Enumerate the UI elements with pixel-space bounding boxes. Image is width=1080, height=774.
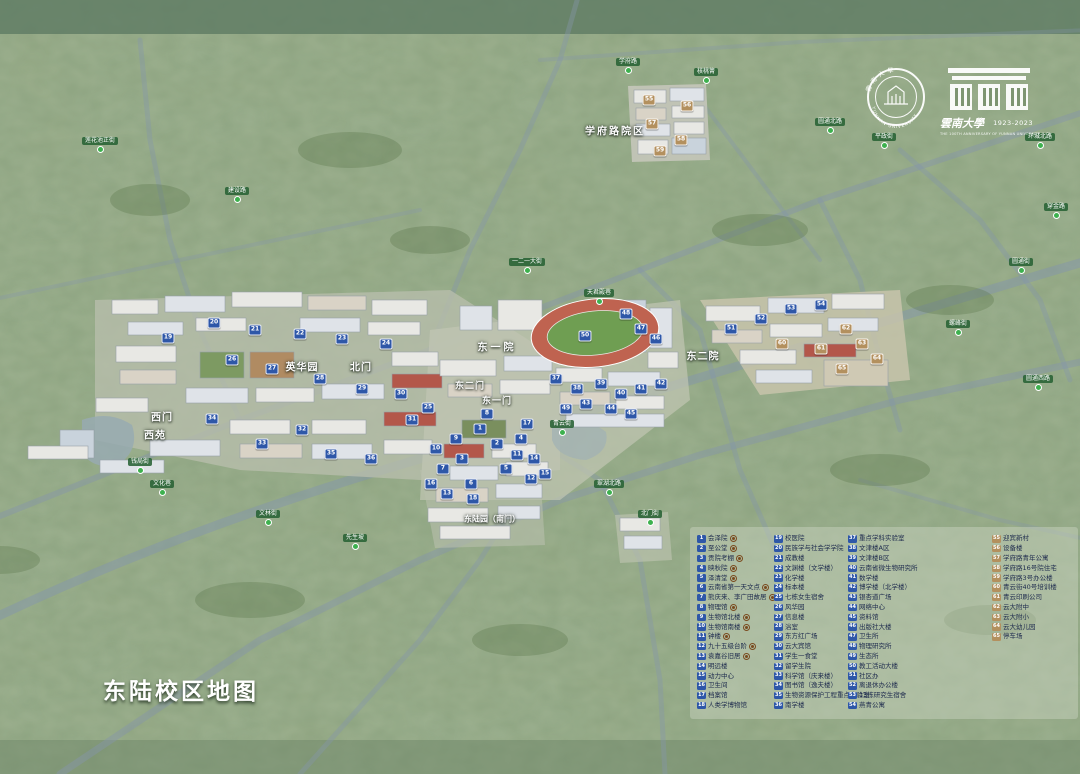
legend-number-badge: 44 <box>848 604 857 612</box>
road-label: 一二一大街 <box>509 258 545 274</box>
legend-item: 13 袁嘉谷旧居 <box>697 652 776 662</box>
building-number-badge: 8 <box>481 409 494 420</box>
legend-label: 社区办 <box>859 672 879 681</box>
map-pin-icon <box>1052 212 1059 219</box>
legend-number-badge: 45 <box>848 614 857 622</box>
building-number-badge: 32 <box>296 425 309 436</box>
legend-label: 明远楼 <box>708 662 728 671</box>
map-pin-icon <box>646 519 653 526</box>
legend-label: 标本楼 <box>785 583 805 592</box>
legend-label: 南学楼 <box>785 701 805 710</box>
legend-label: 文津楼B区 <box>859 554 889 563</box>
legend-label: 云南省微生物研究所 <box>859 564 918 573</box>
legend-label: 资料馆 <box>859 613 879 622</box>
legend-label: 燕青公寓 <box>859 701 885 710</box>
legend-label: 停车场 <box>1003 632 1023 641</box>
legend-label: 科学馆（庆来楼） <box>785 672 837 681</box>
legend-label: 13栋研究生宿舍 <box>859 691 906 700</box>
area-label: 西门 <box>151 409 173 424</box>
legend-item: 48 物理研究所 <box>848 642 918 652</box>
legend-number-badge: 8 <box>697 604 706 612</box>
legend-item: 52 离退休办公楼 <box>848 681 918 691</box>
campus-map: 雲南大學 YUNNAN UNIVERSITY 学府路 <box>0 0 1080 774</box>
road-label: 建设路 <box>225 187 249 203</box>
map-pin-icon <box>351 543 358 550</box>
legend-label: 卫生间 <box>708 681 728 690</box>
map-pin-icon <box>158 489 165 496</box>
legend-label: 学生一食堂 <box>785 652 818 661</box>
building-number-badge: 19 <box>162 333 175 344</box>
legend-number-badge: 21 <box>774 555 783 563</box>
legend-number-badge: 19 <box>774 535 783 543</box>
map-pin-icon <box>96 146 103 153</box>
legend-number-badge: 13 <box>697 653 706 661</box>
building-number-badge: 60 <box>776 339 789 350</box>
building-number-badge: 40 <box>615 389 628 400</box>
page-title: 东陆校区地图 <box>103 672 259 706</box>
area-label: 学府路院区 <box>585 123 645 138</box>
building-number-badge: 61 <box>815 344 828 355</box>
road-label: 螺峰街 <box>946 320 970 336</box>
legend-item: 46 出版社大楼 <box>848 622 918 632</box>
legend-label: 云大附小 <box>1003 613 1029 622</box>
centennial-years: 1923-2023 <box>993 119 1033 127</box>
building-number-badge: 9 <box>450 434 463 445</box>
legend-item: 44 网络中心 <box>848 603 918 613</box>
legend-panel: 1 会泽院 2 至公堂 3 贡院考棚 4 映 <box>690 527 1078 719</box>
legend-column-1: 1 会泽院 2 至公堂 3 贡院考棚 4 映 <box>697 534 776 710</box>
legend-label: 信息楼 <box>785 613 805 622</box>
building-number-badge: 17 <box>521 419 534 430</box>
heritage-marker-icon <box>723 633 730 640</box>
legend-number-badge: 4 <box>697 565 706 573</box>
legend-number-badge: 57 <box>992 555 1001 563</box>
legend-number-badge: 38 <box>848 545 857 553</box>
centennial-subtitle: THE 100TH ANNIVERSARY OF YUNNAN UNIVERSI… <box>940 132 1055 136</box>
road-label: 圆通北路 <box>815 118 845 134</box>
building-number-badge: 45 <box>625 409 638 420</box>
building-number-badge: 52 <box>755 314 768 325</box>
legend-item: 64 云大幼儿园 <box>992 622 1057 632</box>
legend-item: 16 卫生间 <box>697 681 776 691</box>
legend-number-badge: 17 <box>697 692 706 700</box>
map-pin-icon <box>264 519 271 526</box>
legend-label: 云大附中 <box>1003 603 1029 612</box>
legend-number-badge: 54 <box>848 702 857 710</box>
legend-number-badge: 11 <box>697 633 706 641</box>
legend-label: 人类学博物馆 <box>708 701 747 710</box>
legend-label: 设备楼 <box>1003 544 1023 553</box>
legend-label: 银杏道广场 <box>859 593 892 602</box>
legend-number-badge: 36 <box>774 702 783 710</box>
legend-number-badge: 47 <box>848 633 857 641</box>
map-pin-icon <box>1017 267 1024 274</box>
road-label: 先生坡 <box>343 534 367 550</box>
legend-label: 会泽院 <box>708 534 728 543</box>
legend-item: 5 泽清堂 <box>697 573 776 583</box>
legend-number-badge: 9 <box>697 614 706 622</box>
building-number-badge: 47 <box>635 324 648 335</box>
building-number-badge: 18 <box>467 494 480 505</box>
legend-label: 云大幼儿园 <box>1003 623 1036 632</box>
legend-label: 物理馆 <box>708 603 728 612</box>
map-pin-icon <box>624 67 631 74</box>
building-number-badge: 7 <box>437 464 450 475</box>
building-number-badge: 38 <box>571 384 584 395</box>
road-label: 穿金路 <box>1044 203 1068 219</box>
building-number-badge: 33 <box>256 439 269 450</box>
building-number-badge: 29 <box>356 384 369 395</box>
legend-label: 博学楼（北学楼） <box>859 583 911 592</box>
building-number-badge: 2 <box>491 439 504 450</box>
map-pin-icon <box>1034 384 1041 391</box>
legend-label: 生物馆南楼 <box>708 623 741 632</box>
road-label: 天君殿巷 <box>584 289 614 305</box>
legend-number-badge: 56 <box>992 545 1001 553</box>
building-number-badge: 48 <box>620 309 633 320</box>
legend-number-badge: 3 <box>697 555 706 563</box>
legend-number-badge: 51 <box>848 672 857 680</box>
heritage-marker-icon <box>730 545 737 552</box>
building-number-badge: 50 <box>579 331 592 342</box>
building-number-badge: 51 <box>725 324 738 335</box>
legend-number-badge: 23 <box>774 574 783 582</box>
legend-item: 51 社区办 <box>848 671 918 681</box>
legend-number-badge: 37 <box>848 535 857 543</box>
legend-number-badge: 16 <box>697 682 706 690</box>
legend-label: 网络中心 <box>859 603 885 612</box>
legend-item: 49 生态所 <box>848 652 918 662</box>
road-label: 圆通街 <box>1009 258 1033 274</box>
building-number-badge: 4 <box>515 434 528 445</box>
legend-number-badge: 34 <box>774 682 783 690</box>
legend-number-badge: 14 <box>697 663 706 671</box>
legend-item: 59 学府路3号办公楼 <box>992 573 1057 583</box>
legend-label: 浴室 <box>785 623 798 632</box>
building-number-badge: 14 <box>528 454 541 465</box>
legend-item: 45 资料馆 <box>848 612 918 622</box>
building-number-badge: 10 <box>430 444 443 455</box>
building-number-badge: 49 <box>560 404 573 415</box>
road-label: 学府路 <box>616 58 640 74</box>
legend-item: 15 动力中心 <box>697 671 776 681</box>
building-number-badge: 42 <box>655 379 668 390</box>
heritage-marker-icon <box>730 565 737 572</box>
legend-number-badge: 60 <box>992 584 1001 592</box>
road-label: 文林街 <box>256 510 280 526</box>
building-number-badge: 43 <box>580 399 593 410</box>
building-number-badge: 12 <box>525 474 538 485</box>
building-number-badge: 24 <box>380 339 393 350</box>
area-label: 西苑 <box>144 427 166 442</box>
building-number-badge: 59 <box>654 146 667 157</box>
building-number-badge: 44 <box>605 404 618 415</box>
legend-item: 14 明远楼 <box>697 661 776 671</box>
legend-item: 53 13栋研究生宿舍 <box>848 691 918 701</box>
legend-number-badge: 1 <box>697 535 706 543</box>
road-label: 文化巷 <box>150 480 174 496</box>
map-pin-icon <box>523 267 530 274</box>
legend-item: 1 会泽院 <box>697 534 776 544</box>
building-number-badge: 30 <box>395 389 408 400</box>
building-number-badge: 28 <box>314 374 327 385</box>
legend-item: 8 物理馆 <box>697 603 776 613</box>
legend-number-badge: 22 <box>774 565 783 573</box>
building-number-badge: 58 <box>675 135 688 146</box>
legend-number-badge: 62 <box>992 604 1001 612</box>
legend-item: 17 档案馆 <box>697 691 776 701</box>
map-pin-icon <box>595 298 602 305</box>
legend-label: 出版社大楼 <box>859 623 892 632</box>
area-label: 东陆园（南门） <box>464 514 520 525</box>
legend-label: 熊庆来、李广田故居 <box>708 593 767 602</box>
legend-number-badge: 6 <box>697 584 706 592</box>
building-number-badge: 25 <box>422 403 435 414</box>
legend-label: 文津楼A区 <box>859 544 889 553</box>
legend-label: 离退休办公楼 <box>859 681 898 690</box>
area-label: 北门 <box>350 359 372 374</box>
building-number-badge: 3 <box>456 454 469 465</box>
legend-number-badge: 32 <box>774 663 783 671</box>
legend-label: 学府路16号院住宅 <box>1003 564 1057 573</box>
legend-label: 生态所 <box>859 652 879 661</box>
heritage-marker-icon <box>736 555 743 562</box>
legend-number-badge: 25 <box>774 594 783 602</box>
legend-number-badge: 31 <box>774 653 783 661</box>
map-pin-icon <box>702 77 709 84</box>
legend-label: 袁嘉谷旧居 <box>708 652 741 661</box>
legend-label: 青云街40号培训楼 <box>1003 583 1057 592</box>
legend-number-badge: 33 <box>774 672 783 680</box>
legend-label: 图书馆（逸夫楼） <box>785 681 837 690</box>
legend-number-badge: 5 <box>697 574 706 582</box>
building-number-badge: 35 <box>325 449 338 460</box>
legend-item: 58 学府路16号院住宅 <box>992 563 1057 573</box>
legend-number-badge: 28 <box>774 623 783 631</box>
building-number-badge: 23 <box>336 334 349 345</box>
legend-column-4: 55 迎宾新村 56 设备楼 57 学府路青年公寓 58 <box>992 534 1057 642</box>
legend-number-badge: 43 <box>848 594 857 602</box>
legend-label: 校医院 <box>785 534 805 543</box>
legend-number-badge: 39 <box>848 555 857 563</box>
legend-label: 成教楼 <box>785 554 805 563</box>
legend-label: 档案馆 <box>708 691 728 700</box>
legend-number-badge: 46 <box>848 623 857 631</box>
legend-number-badge: 59 <box>992 574 1001 582</box>
legend-item: 10 生物馆南楼 <box>697 622 776 632</box>
building-number-badge: 41 <box>635 384 648 395</box>
legend-item: 18 人类学博物馆 <box>697 701 776 711</box>
map-pin-icon <box>136 467 143 474</box>
building-number-badge: 57 <box>646 119 659 130</box>
map-pin-icon <box>558 429 565 436</box>
legend-item: 42 博学楼（北学楼） <box>848 583 918 593</box>
legend-label: 民族学与社会学学院 <box>785 544 844 553</box>
building-number-badge: 64 <box>871 354 884 365</box>
building-number-badge: 5 <box>500 464 513 475</box>
legend-item: 40 云南省微生物研究所 <box>848 563 918 573</box>
legend-label: 动力中心 <box>708 672 734 681</box>
legend-number-badge: 50 <box>848 663 857 671</box>
legend-item: 50 教工活动大楼 <box>848 661 918 671</box>
heritage-marker-icon <box>762 584 769 591</box>
legend-label: 贡院考棚 <box>708 554 734 563</box>
legend-label: 东方红广场 <box>785 632 818 641</box>
legend-number-badge: 24 <box>774 584 783 592</box>
building-number-badge: 20 <box>208 318 221 329</box>
legend-number-badge: 35 <box>774 692 783 700</box>
legend-item: 41 数学楼 <box>848 573 918 583</box>
building-number-badge: 11 <box>511 450 524 461</box>
legend-label: 映秋院 <box>708 564 728 573</box>
building-number-badge: 34 <box>206 414 219 425</box>
legend-item: 4 映秋院 <box>697 563 776 573</box>
legend-column-3: 37 重点学科实验室 38 文津楼A区 39 文津楼B区 40 <box>848 534 918 710</box>
legend-item: 37 重点学科实验室 <box>848 534 918 544</box>
legend-label: 教工活动大楼 <box>859 662 898 671</box>
legend-number-badge: 52 <box>848 682 857 690</box>
building-number-badge: 31 <box>406 415 419 426</box>
heritage-marker-icon <box>749 643 756 650</box>
building-number-badge: 62 <box>840 324 853 335</box>
legend-label: 云南省第一天文点 <box>708 583 760 592</box>
heritage-marker-icon <box>730 604 737 611</box>
legend-number-badge: 63 <box>992 614 1001 622</box>
legend-item: 6 云南省第一天文点 <box>697 583 776 593</box>
legend-label: 生物馆北楼 <box>708 613 741 622</box>
legend-item: 54 燕青公寓 <box>848 701 918 711</box>
building-number-badge: 13 <box>441 489 454 500</box>
legend-number-badge: 40 <box>848 565 857 573</box>
legend-label: 学府路青年公寓 <box>1003 554 1049 563</box>
legend-label: 迎宾新村 <box>1003 534 1029 543</box>
road-label: 青云街 <box>550 420 574 436</box>
centennial-name: 雲南大學 <box>940 115 984 131</box>
legend-label: 物理研究所 <box>859 642 892 651</box>
building-number-badge: 15 <box>539 469 552 480</box>
legend-number-badge: 55 <box>992 535 1001 543</box>
legend-number-badge: 65 <box>992 633 1001 641</box>
building-number-badge: 26 <box>226 355 239 366</box>
legend-number-badge: 26 <box>774 604 783 612</box>
legend-label: 留学生院 <box>785 662 811 671</box>
building-number-badge: 54 <box>815 300 828 311</box>
legend-number-badge: 2 <box>697 545 706 553</box>
legend-label: 风华园 <box>785 603 805 612</box>
legend-label: 至公堂 <box>708 544 728 553</box>
legend-number-badge: 58 <box>992 565 1001 573</box>
legend-item: 12 九十五级台阶 <box>697 642 776 652</box>
building-number-badge: 55 <box>643 95 656 106</box>
legend-item: 56 设备楼 <box>992 544 1057 554</box>
legend-number-badge: 49 <box>848 653 857 661</box>
building-number-badge: 16 <box>425 479 438 490</box>
map-pin-icon <box>233 196 240 203</box>
building-number-badge: 39 <box>595 379 608 390</box>
legend-item: 61 青云印刷公司 <box>992 593 1057 603</box>
legend-item: 3 贡院考棚 <box>697 554 776 564</box>
legend-number-badge: 27 <box>774 614 783 622</box>
legend-number-badge: 41 <box>848 574 857 582</box>
building-number-badge: 22 <box>294 329 307 340</box>
legend-label: 数学楼 <box>859 574 879 583</box>
area-label: 东二门 <box>455 379 485 392</box>
building-number-badge: 56 <box>681 101 694 112</box>
legend-item: 7 熊庆来、李广田故居 <box>697 593 776 603</box>
legend-number-badge: 64 <box>992 623 1001 631</box>
heritage-marker-icon <box>743 614 750 621</box>
legend-number-badge: 48 <box>848 643 857 651</box>
legend-label: 文渊楼（文学楼） <box>785 564 837 573</box>
legend-label: 化学楼 <box>785 574 805 583</box>
legend-item: 2 至公堂 <box>697 544 776 554</box>
legend-label: 泽清堂 <box>708 574 728 583</box>
road-label: 莲花池正街 <box>82 137 118 153</box>
legend-item: 63 云大附小 <box>992 612 1057 622</box>
area-label: 英华园 <box>286 359 319 374</box>
legend-number-badge: 15 <box>697 672 706 680</box>
legend-number-badge: 10 <box>697 623 706 631</box>
area-label: 东一院 <box>478 339 517 354</box>
area-label: 东二院 <box>687 348 720 363</box>
legend-number-badge: 29 <box>774 633 783 641</box>
legend-number-badge: 30 <box>774 643 783 651</box>
legend-number-badge: 12 <box>697 643 706 651</box>
legend-number-badge: 61 <box>992 594 1001 602</box>
legend-label: 七栋女生宿舍 <box>785 593 824 602</box>
heritage-marker-icon <box>743 653 750 660</box>
building-number-badge: 65 <box>836 364 849 375</box>
legend-item: 43 银杏道广场 <box>848 593 918 603</box>
heritage-marker-icon <box>730 535 737 542</box>
legend-number-badge: 7 <box>697 594 706 602</box>
building-number-badge: 37 <box>550 374 563 385</box>
legend-label: 云大宾馆 <box>785 642 811 651</box>
legend-item: 39 文津楼B区 <box>848 554 918 564</box>
legend-label: 学府路3号办公楼 <box>1003 574 1053 583</box>
legend-label: 卫生所 <box>859 632 879 641</box>
legend-label: 钟楼 <box>708 632 721 641</box>
legend-item: 57 学府路青年公寓 <box>992 554 1057 564</box>
area-label: 东一门 <box>482 394 512 407</box>
road-label: 钱局街 <box>128 458 152 474</box>
road-label: 北门街 <box>638 510 662 526</box>
building-number-badge: 1 <box>474 424 487 435</box>
legend-label: 青云印刷公司 <box>1003 593 1042 602</box>
legend-item: 38 文津楼A区 <box>848 544 918 554</box>
building-number-badge: 53 <box>785 304 798 315</box>
legend-item: 62 云大附中 <box>992 603 1057 613</box>
map-pin-icon <box>826 127 833 134</box>
road-label: 翠湖北路 <box>594 480 624 496</box>
legend-item: 9 生物馆北楼 <box>697 612 776 622</box>
legend-number-badge: 20 <box>774 545 783 553</box>
legend-label: 九十五级台阶 <box>708 642 747 651</box>
legend-item: 55 迎宾新村 <box>992 534 1057 544</box>
building-number-badge: 27 <box>266 364 279 375</box>
centennial-logo: 雲南大學 1923-2023 THE 100TH ANNIVERSARY OF … <box>855 60 1055 145</box>
legend-label: 重点学科实验室 <box>859 534 905 543</box>
map-pin-icon <box>605 489 612 496</box>
legend-item: 11 钟楼 <box>697 632 776 642</box>
building-number-badge: 21 <box>249 325 262 336</box>
building-number-badge: 36 <box>365 454 378 465</box>
heritage-marker-icon <box>743 624 750 631</box>
road-label: 核桃箐 <box>694 68 718 84</box>
legend-item: 60 青云街40号培训楼 <box>992 583 1057 593</box>
legend-item: 65 停车场 <box>992 632 1057 642</box>
road-label: 圆通西路 <box>1023 375 1053 391</box>
